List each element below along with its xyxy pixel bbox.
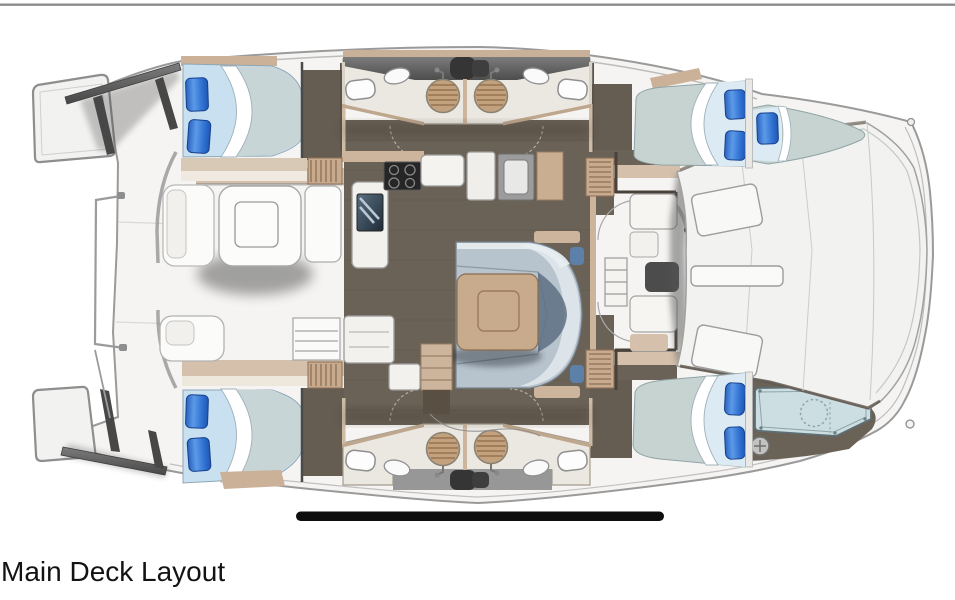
svg-text:Main Deck Layout: Main Deck Layout	[1, 556, 225, 587]
